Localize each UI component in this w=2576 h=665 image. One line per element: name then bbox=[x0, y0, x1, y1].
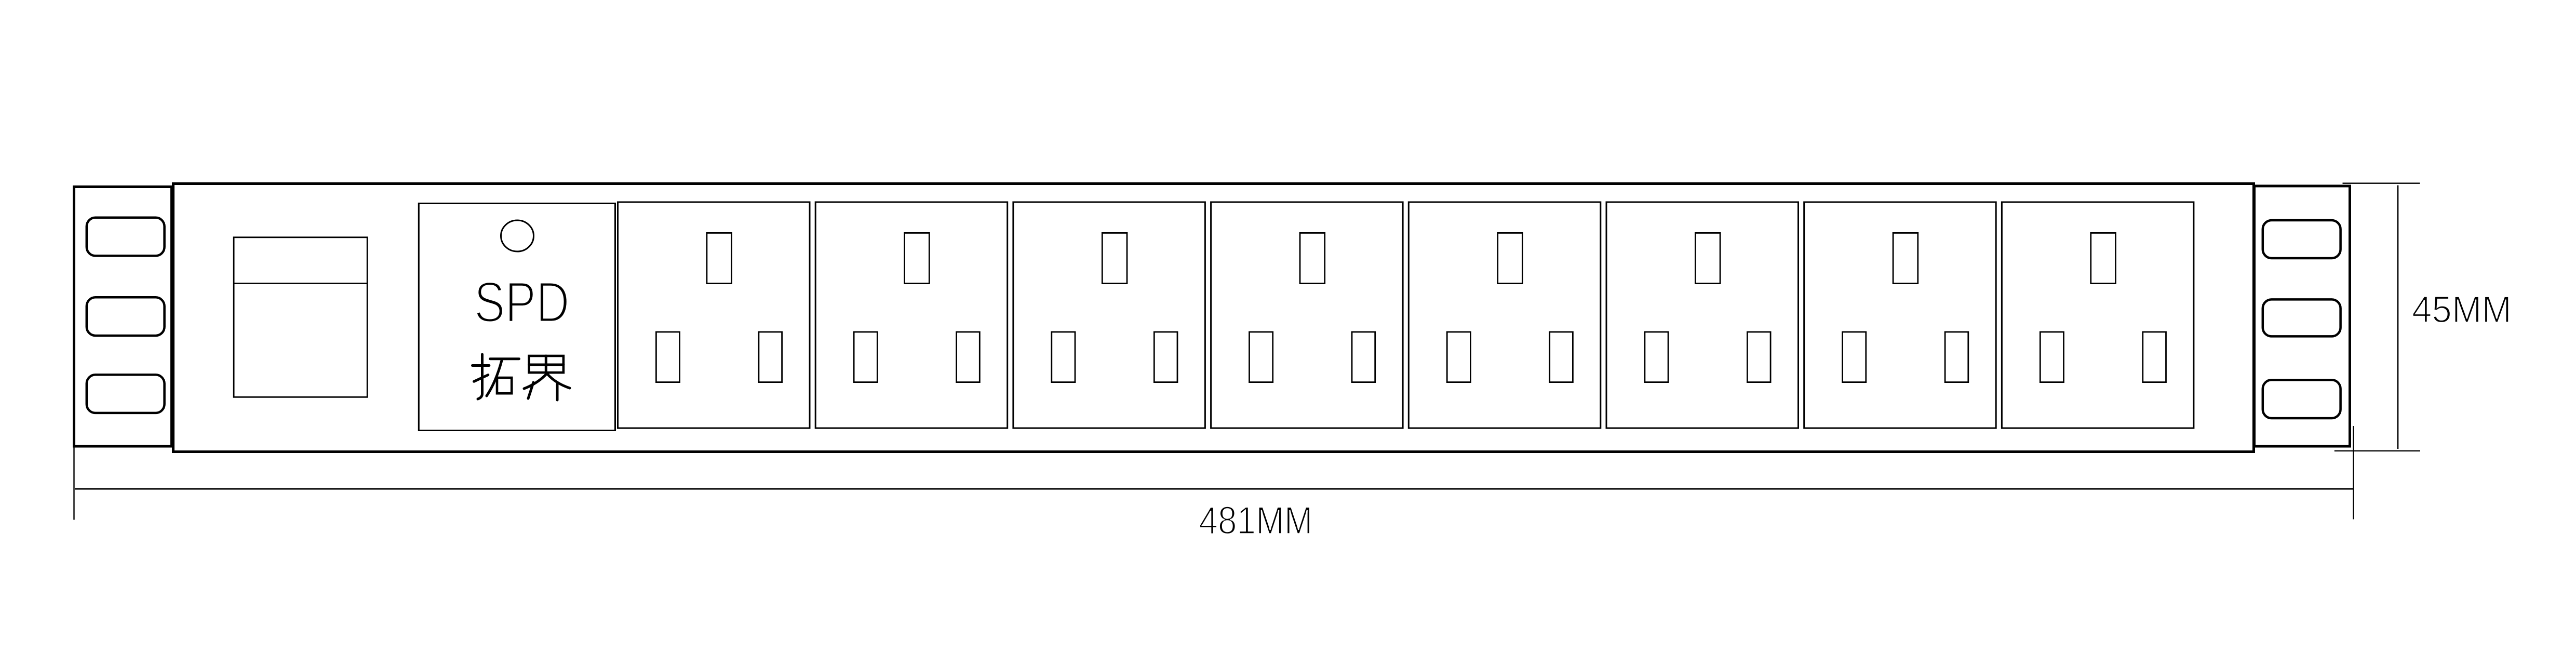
svg-text:SPD: SPD bbox=[474, 271, 570, 335]
svg-text:481MM: 481MM bbox=[1199, 499, 1313, 542]
svg-text:45MM: 45MM bbox=[2412, 289, 2512, 331]
